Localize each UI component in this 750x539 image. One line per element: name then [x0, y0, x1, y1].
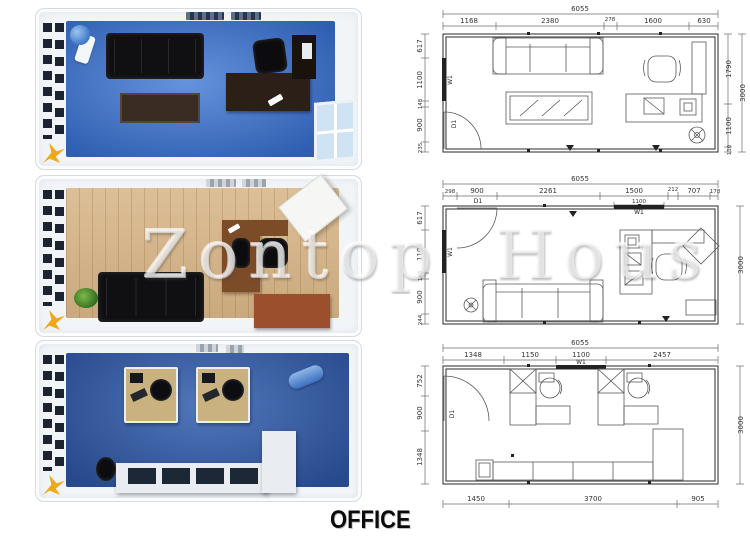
dim: 900	[416, 406, 424, 419]
dim: 1100	[416, 71, 424, 89]
door-label: D1	[449, 410, 456, 419]
office-chair	[258, 238, 288, 268]
floor-plan-2: 6055 298 900 2261 1500 212 707 178 1100 …	[398, 172, 750, 340]
cabinet-plan	[686, 300, 716, 315]
reception-counter	[116, 463, 268, 493]
dim-overall-width: 6055	[571, 339, 589, 347]
office-chair-plan	[644, 56, 681, 82]
container-wall-slats-icon	[41, 353, 65, 489]
dim: 1600	[644, 17, 662, 25]
dim: 900	[416, 290, 424, 303]
ceiling-vent-icon	[206, 179, 236, 187]
ceiling-vent-icon	[242, 179, 266, 187]
dim: 2261	[539, 187, 557, 195]
tall-cabinet	[292, 35, 316, 79]
dim: 905	[691, 495, 704, 503]
door-label: D1	[451, 120, 458, 129]
dim: 212	[668, 187, 679, 193]
render-office-1	[35, 8, 362, 170]
office-chair	[222, 379, 244, 401]
window-label: W1	[634, 209, 644, 216]
ceiling-vent-icon	[186, 12, 224, 20]
storage-cabinet	[254, 294, 330, 328]
office-chair-plan	[652, 254, 687, 280]
page-title: OFFICE	[330, 506, 411, 535]
dim-overall-width: 6055	[571, 5, 589, 13]
container-wall-slats-icon	[41, 21, 65, 157]
monitor-icon	[232, 238, 250, 268]
dim: 110	[727, 144, 733, 155]
fan-plan	[689, 127, 705, 143]
dim: 1348	[416, 448, 424, 466]
monitor-icon	[130, 373, 143, 383]
sofa-plan	[483, 280, 603, 322]
floor-plan-3: 6055 1348 1150 1100 2457 W1 752 900 1348…	[398, 336, 750, 536]
floor-plan-1: 6055 1168 2380 278 1600 630 617 1100 148…	[398, 2, 750, 172]
monitor-icon	[202, 373, 215, 383]
plan2-dimension-lines	[421, 180, 744, 324]
dim: 235	[418, 142, 424, 153]
dim: 278	[605, 17, 616, 23]
plan1-dimension-lines	[421, 10, 746, 152]
dim: 2457	[653, 351, 671, 359]
dim-overall-height: 3000	[739, 84, 747, 102]
dim-overall-height: 3000	[737, 256, 745, 274]
window-label: W1	[447, 247, 454, 257]
dim: 1100	[725, 117, 733, 135]
plan1-walls	[443, 34, 718, 152]
dim: 1100	[416, 243, 424, 261]
dim: 900	[416, 118, 424, 131]
cabinet-screen-icon	[302, 43, 312, 59]
dim: 1348	[464, 351, 482, 359]
dim: 298	[445, 189, 456, 195]
window-label: W1	[576, 359, 586, 366]
dim: 1450	[467, 495, 485, 503]
reception-counter-plan	[476, 429, 683, 480]
office-chair	[96, 457, 116, 481]
dim: 630	[697, 17, 710, 25]
water-bottle-icon	[70, 25, 90, 45]
dim-overall-height: 3000	[737, 416, 745, 434]
render-office-3	[35, 340, 362, 502]
dim-overall-width: 6055	[571, 175, 589, 183]
dim: 3700	[584, 495, 602, 503]
dim: 1100	[572, 351, 590, 359]
ceiling-vent-icon	[226, 345, 244, 353]
dim: 1168	[460, 17, 478, 25]
window-w1	[556, 365, 606, 369]
reception-counter-return	[262, 431, 296, 493]
window-label: W1	[447, 75, 454, 85]
workstation-a-plan	[510, 369, 570, 425]
dim: 1150	[521, 351, 539, 359]
sofa	[98, 272, 204, 322]
sofa	[106, 33, 204, 79]
render-office-2	[35, 175, 362, 337]
reception-desk-plan	[620, 230, 704, 294]
corner-table-plan	[683, 228, 719, 264]
dim: 617	[416, 211, 424, 224]
window-w1	[442, 58, 446, 101]
window-w1-left	[442, 230, 446, 273]
dim: 148	[418, 270, 424, 281]
door-d1	[457, 208, 497, 248]
ceiling-vent-icon	[196, 344, 218, 352]
dim: 752	[416, 374, 424, 387]
sofa-plan	[493, 38, 603, 74]
dim: 148	[418, 98, 424, 109]
plan2-walls	[443, 206, 718, 324]
marker-icon	[566, 145, 574, 151]
dim: 244	[418, 314, 424, 325]
ceiling-vent-icon	[231, 12, 261, 20]
coffee-table	[120, 93, 200, 123]
marker-icon	[569, 211, 577, 217]
keyboard-icon	[130, 388, 148, 402]
marker-icon	[652, 145, 660, 151]
dim: 1500	[625, 187, 643, 195]
fan-plan	[464, 298, 478, 312]
dim: 617	[416, 39, 424, 52]
workstation-desk	[196, 367, 250, 423]
coffee-table-plan	[506, 92, 592, 124]
door-label: D1	[474, 198, 483, 205]
keyboard-icon	[202, 388, 220, 402]
workstation-b-plan	[598, 369, 658, 425]
dim: 707	[687, 187, 700, 195]
glass-door	[314, 99, 356, 163]
office-layout-sheet: 6055 1168 2380 278 1600 630 617 1100 148…	[0, 0, 750, 539]
potted-plant	[74, 288, 98, 308]
dim: 178	[710, 189, 721, 195]
container-wall-slats-icon	[41, 188, 65, 324]
dim: 900	[470, 187, 483, 195]
door-d1	[444, 112, 481, 149]
office-chair	[252, 37, 288, 75]
plan3-walls	[443, 366, 718, 484]
office-chair	[150, 379, 172, 401]
dim: 1790	[725, 60, 733, 78]
workstation-desk	[124, 367, 178, 423]
dim: 2380	[541, 17, 559, 25]
